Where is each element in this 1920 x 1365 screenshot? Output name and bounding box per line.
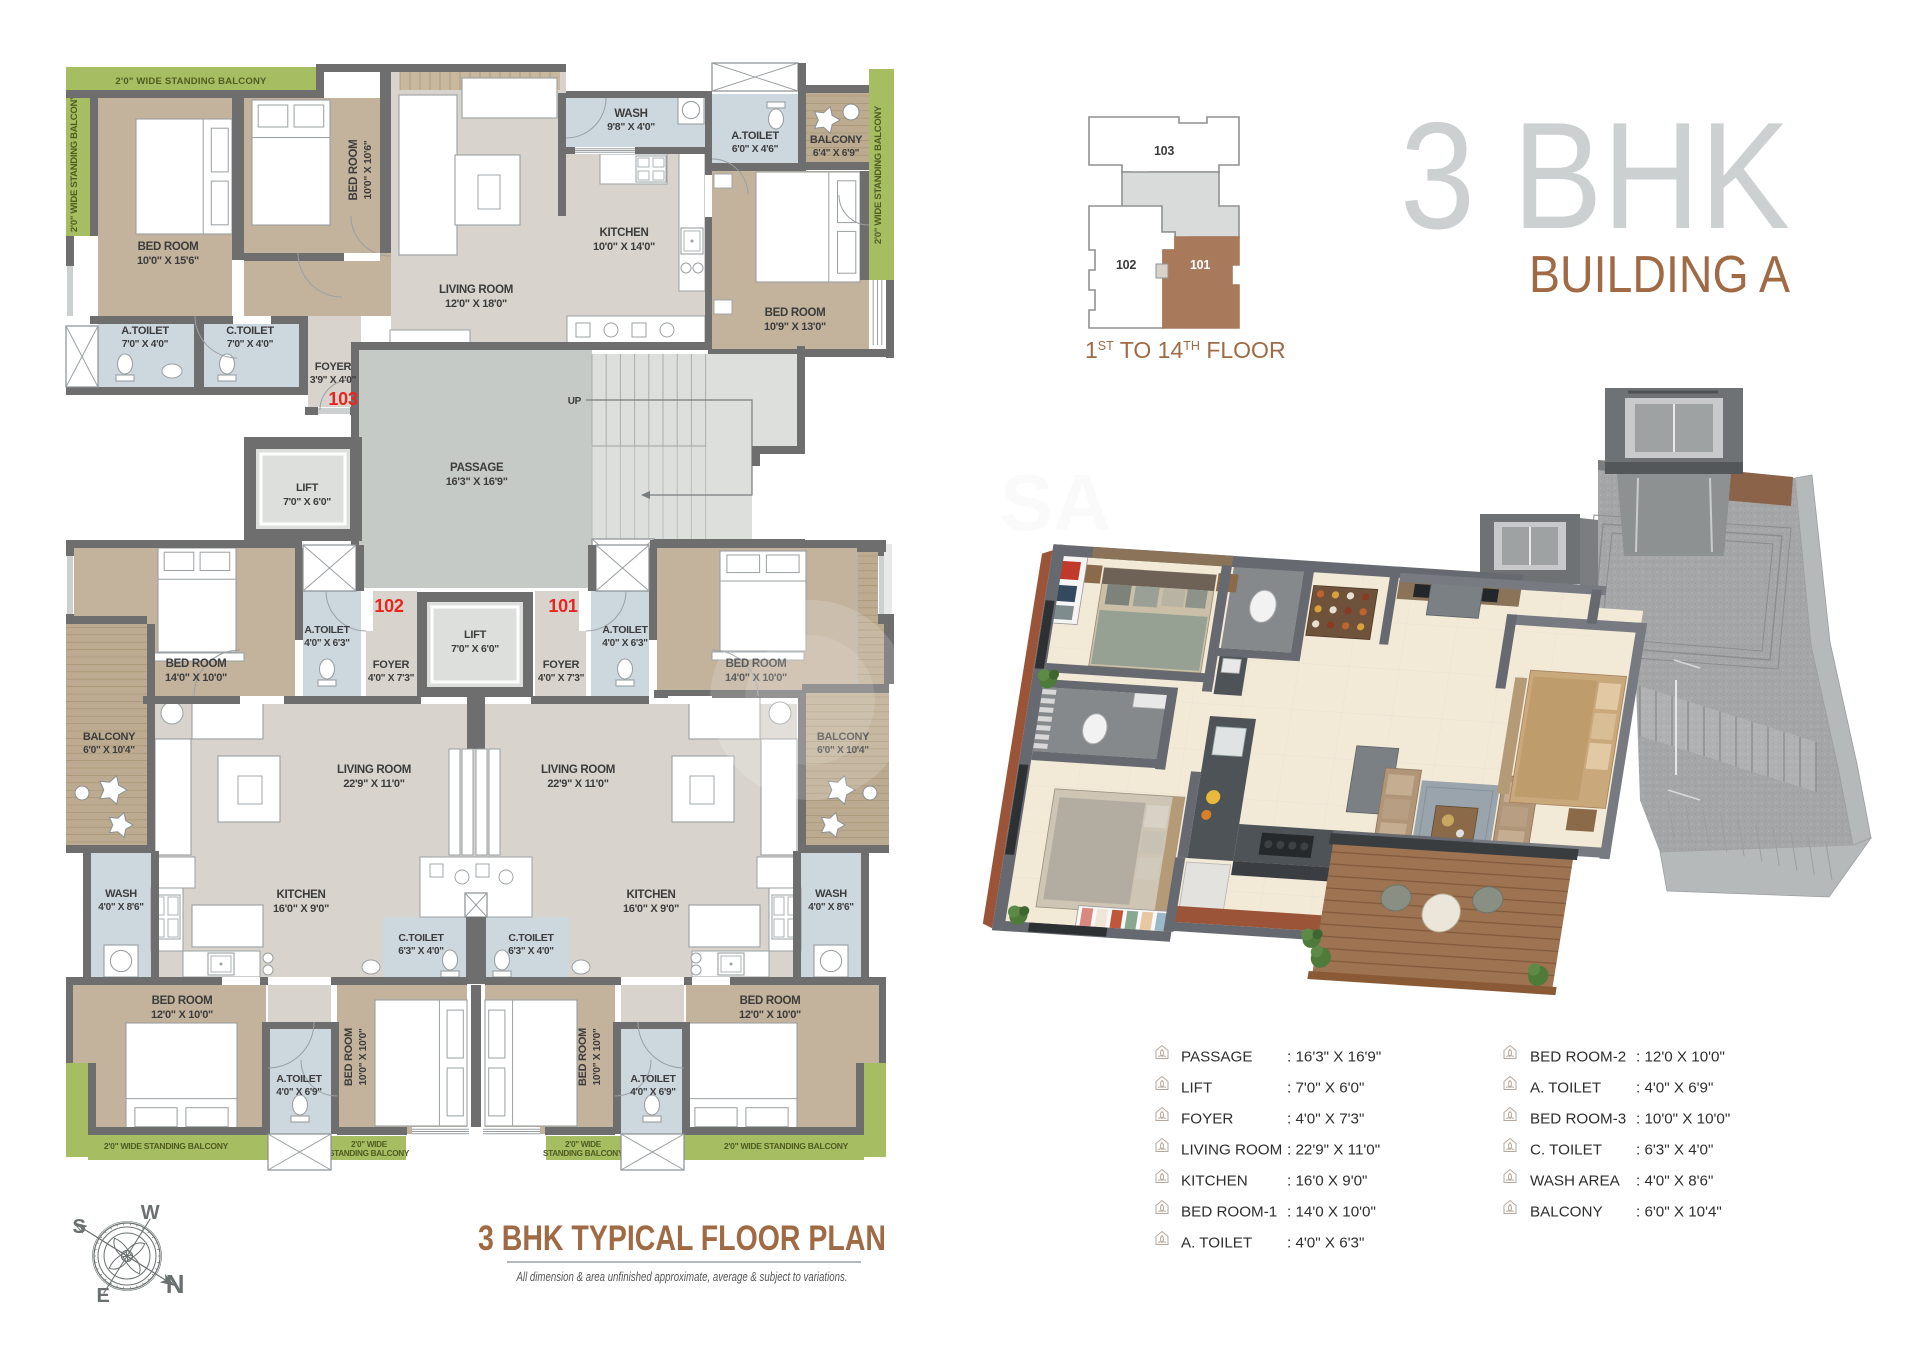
svg-text:: 7'0" X 6'0": : 7'0" X 6'0": [1287, 1080, 1364, 1097]
svg-text:103: 103: [328, 389, 357, 409]
svg-text:A.TOILET: A.TOILET: [121, 325, 169, 337]
svg-text:KITCHEN: KITCHEN: [1181, 1173, 1248, 1190]
svg-text:22'9" X 11'0": 22'9" X 11'0": [343, 778, 404, 790]
svg-text:LIVING ROOM: LIVING ROOM: [439, 284, 513, 296]
svg-text:16'0" X 9'0": 16'0" X 9'0": [273, 903, 329, 915]
svg-text:10'0" X 10'0": 10'0" X 10'0": [592, 1028, 603, 1086]
svg-text:A. TOILET: A. TOILET: [1181, 1235, 1252, 1252]
svg-text:12'0" X 10'0": 12'0" X 10'0": [739, 1009, 801, 1021]
svg-text:6'3" X 4'0": 6'3" X 4'0": [398, 946, 444, 957]
svg-text:10'0" X 15'6": 10'0" X 15'6": [137, 255, 199, 267]
svg-text:6'0" X 10'4": 6'0" X 10'4": [83, 745, 135, 756]
svg-text:: 12'0 X 10'0": : 12'0 X 10'0": [1636, 1049, 1725, 1066]
svg-text:BALCONY: BALCONY: [1530, 1204, 1603, 1221]
svg-text:FOYER: FOYER: [543, 659, 580, 671]
svg-text:KITCHEN: KITCHEN: [599, 227, 648, 239]
svg-text:A.TOILET: A.TOILET: [304, 624, 350, 636]
svg-text:4'0" X 6'9": 4'0" X 6'9": [630, 1087, 676, 1098]
svg-text:3 BHK TYPICAL FLOOR PLAN: 3 BHK TYPICAL FLOOR PLAN: [478, 1219, 886, 1258]
svg-text:PASSAGE: PASSAGE: [450, 462, 504, 474]
svg-text:14'0" X 10'0": 14'0" X 10'0": [165, 672, 227, 684]
svg-text:: 6'0" X 10'4": : 6'0" X 10'4": [1636, 1204, 1722, 1221]
svg-text:103: 103: [1154, 144, 1174, 158]
svg-text:E: E: [96, 1285, 109, 1307]
svg-text:LIVING ROOM: LIVING ROOM: [1181, 1142, 1282, 1159]
svg-text:2'0" WIDE: 2'0" WIDE: [565, 1140, 602, 1149]
svg-text:BED ROOM: BED ROOM: [765, 307, 826, 319]
svg-text:BED ROOM: BED ROOM: [577, 1028, 589, 1086]
svg-text:4'0" X 8'6": 4'0" X 8'6": [98, 902, 144, 913]
svg-text:6'3" X 4'0": 6'3" X 4'0": [508, 946, 554, 957]
svg-text:BED ROOM-2: BED ROOM-2: [1530, 1049, 1626, 1066]
svg-text:WASH: WASH: [105, 888, 137, 900]
svg-text:10'0" X 10'6": 10'0" X 10'6": [362, 140, 374, 199]
svg-text:WASH AREA: WASH AREA: [1530, 1173, 1621, 1190]
svg-text:W: W: [141, 1202, 160, 1224]
svg-text:2'0" WIDE STANDING BALCONY: 2'0" WIDE STANDING BALCONY: [104, 1141, 229, 1151]
svg-text:A.TOILET: A.TOILET: [731, 130, 779, 142]
svg-text:PASSAGE: PASSAGE: [1181, 1049, 1252, 1066]
svg-text:BED ROOM: BED ROOM: [152, 995, 213, 1007]
svg-text:22'9" X 11'0": 22'9" X 11'0": [547, 778, 608, 790]
svg-text:4'0" X 7'3": 4'0" X 7'3": [538, 673, 585, 684]
svg-text:2'0" WIDE STANDING BALCONY: 2'0" WIDE STANDING BALCONY: [873, 105, 884, 244]
svg-text:BUILDING A: BUILDING A: [1529, 246, 1790, 304]
svg-text:BED ROOM-1: BED ROOM-1: [1181, 1204, 1277, 1221]
svg-text:4'0" X 7'3": 4'0" X 7'3": [368, 673, 415, 684]
svg-text:16'0" X 9'0": 16'0" X 9'0": [623, 903, 679, 915]
svg-text:LIVING ROOM: LIVING ROOM: [541, 764, 615, 776]
svg-text:SA: SA: [1000, 458, 1111, 547]
svg-text:7'0" X 6'0": 7'0" X 6'0": [451, 643, 499, 655]
svg-text:10'0" X 14'0": 10'0" X 14'0": [593, 241, 655, 253]
svg-text:BED ROOM: BED ROOM: [348, 140, 360, 201]
svg-text:BED ROOM: BED ROOM: [343, 1028, 355, 1086]
svg-text:BED ROOM-3: BED ROOM-3: [1530, 1111, 1626, 1128]
svg-text:C. TOILET: C. TOILET: [1530, 1142, 1602, 1159]
svg-text:LIVING ROOM: LIVING ROOM: [337, 764, 411, 776]
svg-text:102: 102: [374, 596, 403, 616]
svg-text:BED ROOM: BED ROOM: [138, 241, 199, 253]
svg-text:A.TOILET: A.TOILET: [602, 624, 648, 636]
svg-text:10'9" X 13'0": 10'9" X 13'0": [764, 321, 826, 333]
svg-text:101: 101: [1190, 258, 1210, 272]
svg-text:: 6'3" X 4'0": : 6'3" X 4'0": [1636, 1142, 1713, 1159]
svg-text:: 22'9" X 11'0": : 22'9" X 11'0": [1287, 1142, 1380, 1159]
svg-text:2'0" WIDE STANDING BALCONY: 2'0" WIDE STANDING BALCONY: [115, 76, 267, 87]
svg-text:: 4'0" X 7'3": : 4'0" X 7'3": [1287, 1111, 1364, 1128]
svg-text:: 4'0" X 6'9": : 4'0" X 6'9": [1636, 1080, 1713, 1097]
svg-text:STANDING BALCONY: STANDING BALCONY: [543, 1149, 624, 1158]
svg-text:7'0" X 6'0": 7'0" X 6'0": [283, 496, 331, 508]
svg-text:2'0" WIDE: 2'0" WIDE: [351, 1140, 388, 1149]
svg-text:10'0" X 10'0": 10'0" X 10'0": [358, 1028, 369, 1086]
svg-text:LIFT: LIFT: [296, 482, 319, 494]
svg-text:: 16'3" X 16'9": : 16'3" X 16'9": [1287, 1049, 1381, 1066]
svg-text:4'0" X 6'9": 4'0" X 6'9": [276, 1087, 322, 1098]
svg-text:C.TOILET: C.TOILET: [398, 932, 444, 944]
svg-text:FOYER: FOYER: [315, 361, 352, 373]
svg-text:A.TOILET: A.TOILET: [276, 1073, 322, 1085]
svg-text:C.TOILET: C.TOILET: [508, 932, 554, 944]
svg-text:4'0" X 6'3": 4'0" X 6'3": [304, 638, 350, 649]
svg-text:WASH: WASH: [614, 108, 647, 120]
svg-text:2'0" WIDE STANDING BALCONY: 2'0" WIDE STANDING BALCONY: [69, 93, 80, 232]
svg-text:4'0" X 8'6": 4'0" X 8'6": [808, 902, 854, 913]
svg-text:UP: UP: [568, 396, 582, 407]
svg-text:STANDING BALCONY: STANDING BALCONY: [329, 1149, 410, 1158]
svg-text:KITCHEN: KITCHEN: [626, 889, 675, 901]
svg-text:S: S: [72, 1216, 85, 1238]
svg-text:BALCONY: BALCONY: [810, 134, 863, 146]
svg-text:: 4'0" X 6'3": : 4'0" X 6'3": [1287, 1235, 1364, 1252]
svg-text:: 14'0 X 10'0": : 14'0 X 10'0": [1287, 1204, 1376, 1221]
svg-text:: 10'0" X 10'0": : 10'0" X 10'0": [1636, 1111, 1730, 1128]
svg-text:LIFT: LIFT: [464, 629, 487, 641]
svg-text:102: 102: [1116, 258, 1136, 272]
svg-text:12'0" X 10'0": 12'0" X 10'0": [151, 1009, 213, 1021]
svg-text:16'3" X 16'9": 16'3" X 16'9": [446, 476, 508, 488]
svg-text:A. TOILET: A. TOILET: [1530, 1080, 1601, 1097]
svg-text:7'0" X 4'0": 7'0" X 4'0": [122, 339, 169, 350]
svg-text:6'4" X 6'9": 6'4" X 6'9": [813, 148, 860, 159]
svg-text:9'8" X 4'0": 9'8" X 4'0": [607, 121, 655, 133]
svg-text:A.TOILET: A.TOILET: [630, 1073, 676, 1085]
svg-text:3'9" X 4'0": 3'9" X 4'0": [310, 375, 357, 386]
svg-text:WASH: WASH: [815, 888, 847, 900]
svg-text:BALCONY: BALCONY: [83, 731, 136, 743]
svg-text:: 16'0 X 9'0": : 16'0 X 9'0": [1287, 1173, 1367, 1190]
svg-text:7'0" X 4'0": 7'0" X 4'0": [227, 339, 274, 350]
svg-text:12'0" X 18'0": 12'0" X 18'0": [445, 298, 507, 310]
svg-text:6'0" X 4'6": 6'0" X 4'6": [732, 144, 779, 155]
svg-text:BED ROOM: BED ROOM: [740, 995, 801, 1007]
svg-text:: 4'0" X 8'6": : 4'0" X 8'6": [1636, 1173, 1713, 1190]
svg-text:All dimension & area unfinishe: All dimension & area unfinished approxim…: [516, 1270, 848, 1284]
svg-text:FOYER: FOYER: [1181, 1111, 1233, 1128]
svg-text:3 BHK: 3 BHK: [1400, 91, 1790, 261]
svg-text:4'0" X 6'3": 4'0" X 6'3": [602, 638, 648, 649]
svg-text:101: 101: [548, 596, 577, 616]
svg-text:C.TOILET: C.TOILET: [226, 325, 274, 337]
svg-text:LIFT: LIFT: [1181, 1080, 1212, 1097]
svg-text:N: N: [166, 1269, 184, 1299]
svg-text:FOYER: FOYER: [373, 659, 410, 671]
svg-text:2'0" WIDE STANDING BALCONY: 2'0" WIDE STANDING BALCONY: [724, 1141, 849, 1151]
svg-text:BED ROOM: BED ROOM: [166, 658, 227, 670]
svg-text:KITCHEN: KITCHEN: [276, 889, 325, 901]
